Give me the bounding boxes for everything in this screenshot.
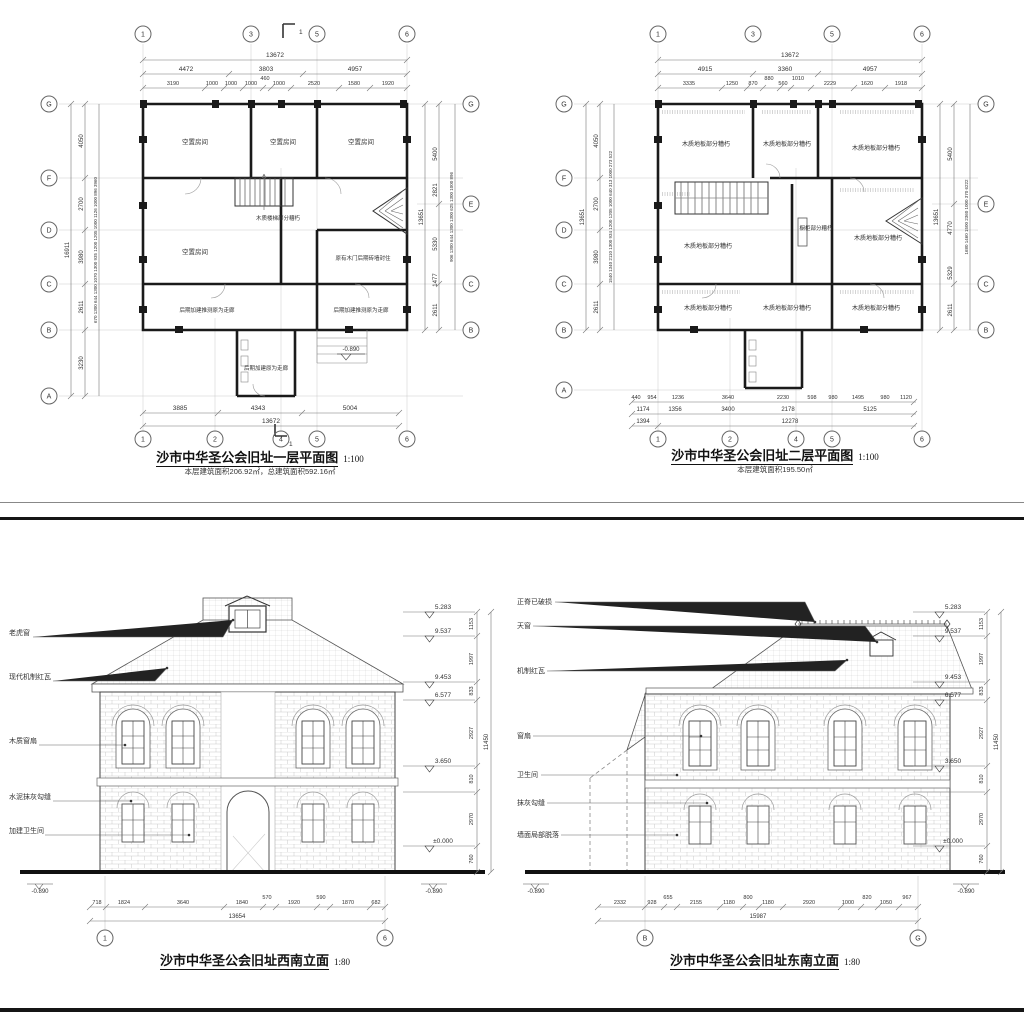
level-text: 6.577 [435, 692, 452, 699]
grid-label: 2 [213, 437, 217, 444]
grid-label: E [469, 202, 474, 209]
dim-text: 590 [316, 895, 325, 901]
dim-text: 1153 [979, 618, 985, 630]
annotation-label: 天窗 [517, 621, 531, 630]
level-text: -0.890 [527, 889, 545, 895]
dim-text: 13672 [266, 52, 284, 59]
grid-label: B [643, 936, 648, 943]
grid-label: 3 [249, 32, 253, 39]
plan2-stair [675, 182, 768, 214]
level-text: 5.283 [435, 604, 452, 611]
grid-label: D [561, 228, 566, 235]
grid-label: 6 [920, 32, 924, 39]
grid-label: G [915, 936, 920, 943]
level-text: 5.283 [945, 604, 962, 611]
se-ground-levels: -0.890 -0.890 [523, 884, 979, 895]
dim-text: 1920 [382, 81, 394, 87]
dim-text: 11450 [484, 733, 490, 750]
southwest-elevation-drawing: 老虎窗 现代机制红瓦 木质窗扇 水泥抹灰勾缝 加建卫生间 5.283 9.537… [5, 540, 505, 970]
level-text: 9.537 [435, 628, 452, 635]
grid-label: 1 [103, 936, 107, 943]
eaves-band [646, 688, 973, 694]
grid-label: G [468, 102, 473, 109]
dim-text: 13672 [781, 52, 799, 59]
dim-text: 760 [979, 854, 985, 863]
dim-text: 2700 [79, 197, 85, 211]
room-label: 木质地板部分糟朽 [852, 144, 900, 152]
level-text: 9.453 [945, 674, 962, 681]
dim-text: 1000 [206, 81, 218, 87]
se-bottom-dimensions: 2332 928 655 2155 1180 800 1180 2920 100… [595, 895, 921, 924]
dim-text: 1824 [118, 900, 130, 906]
cornice-band [645, 780, 950, 788]
dim-chain-text: 670 1300 644 1300 1070 1300 935 1200 120… [93, 176, 98, 323]
dim-text: 718 [92, 900, 101, 906]
annotation-label: 窗扇 [517, 731, 531, 740]
dim-text: 4050 [79, 134, 85, 148]
dim-text: 682 [371, 900, 380, 906]
sw-bottom-dimensions: 718 1824 3640 1840 570 1920 590 1870 682… [87, 895, 388, 924]
dim-text: 3803 [259, 66, 274, 73]
grid-label: 5 [830, 437, 834, 444]
sw-grid-bubbles: 1 6 [97, 930, 393, 946]
dim-text: 3230 [79, 356, 85, 370]
note-label: 后期加建原为走廊 [244, 364, 289, 372]
grid-label: 5 [315, 437, 319, 444]
dim-text: 5329 [948, 266, 954, 280]
grid-label: C [561, 282, 566, 289]
level-text: -0.890 [425, 889, 443, 895]
plan1-room-labels: 空置房间 空置房间 空置房间 空置房间 木质楼梯部分糟朽 原有木门后期砖墙封住 … [179, 137, 391, 372]
dim-text: 3885 [173, 405, 188, 412]
dim-text: 15987 [750, 914, 767, 920]
dim-text: 3335 [683, 81, 695, 87]
dim-text: 1394 [636, 419, 650, 425]
room-label: 空置房间 [348, 137, 374, 146]
dim-text: 1180 [723, 900, 735, 906]
dim-text: 3640 [722, 395, 734, 401]
plan2-cabinet [798, 218, 807, 246]
dim-text: 1000 [245, 81, 257, 87]
dim-text: 1174 [637, 407, 651, 413]
plan1-right-dimensions: 13651 5400 2821 5330 1477 2611 906 1300 … [419, 147, 454, 317]
annotation-label: 正脊已破损 [517, 597, 552, 606]
plan1-grid-bubbles: 1 3 5 6 1 2 4 5 6 G F D C B A G E C B [41, 26, 479, 447]
grid-label: B [469, 328, 474, 335]
grid-label: 4 [279, 437, 283, 444]
annotation-label: 墙面局部脱落 [517, 830, 559, 839]
grid-label: F [562, 176, 566, 183]
dim-text: 2920 [803, 900, 815, 906]
dim-text: 800 [743, 895, 752, 901]
level-text: 3.650 [945, 758, 962, 765]
room-label: 木质地板部分糟朽 [763, 304, 811, 312]
dim-chain-text: 906 1300 644 1300 1300 625 1300 1000 896 [449, 171, 454, 262]
grid-label: 6 [920, 437, 924, 444]
grid-label: G [983, 102, 988, 109]
dim-text: 2927 [979, 727, 985, 739]
grid-label: 1 [141, 32, 145, 39]
dim-text: 1120 [900, 395, 912, 401]
grid-label: F [47, 176, 51, 183]
level-text: ±0.000 [943, 838, 963, 845]
dim-text: 570 [262, 895, 271, 901]
dim-text: 980 [828, 395, 837, 401]
annotation-label: 加建卫生间 [9, 826, 44, 835]
grid-label: C [468, 282, 473, 289]
dim-text: 4957 [348, 66, 363, 73]
annotation-label: 现代机制红瓦 [9, 672, 51, 681]
dim-text: 928 [647, 900, 656, 906]
entry-arch [227, 791, 269, 872]
plan1-bay-window [373, 188, 407, 234]
dim-text: 1000 [273, 81, 285, 87]
room-label: 空置房间 [270, 137, 296, 146]
dim-text: 967 [902, 895, 911, 901]
dim-text: 5330 [433, 237, 439, 251]
dim-text: 1840 [236, 900, 248, 906]
elev-sw-title: 沙市中华圣公会旧址西南立面1:80 [5, 950, 505, 969]
cornice-band [97, 778, 398, 786]
plan2-wall-hatch [662, 112, 915, 292]
room-label: 木质地板部分糟朽 [854, 234, 902, 242]
grid-label: E [984, 202, 989, 209]
dim-text: 2611 [594, 300, 600, 314]
level-text: -0.890 [342, 347, 360, 353]
room-label: 空置房间 [182, 137, 208, 146]
level-text: 6.577 [945, 692, 962, 699]
room-label: 木质地板部分糟朽 [682, 140, 730, 148]
dim-text: 1050 [880, 900, 892, 906]
dim-text: 2700 [594, 197, 600, 211]
dim-text: 598 [807, 395, 816, 401]
dim-text: 1580 [348, 81, 360, 87]
sheet-separator-thick [0, 517, 1024, 520]
dim-text: 2611 [948, 303, 954, 317]
grid-label: 1 [656, 32, 660, 39]
grid-label: G [561, 102, 566, 109]
dim-text: 3640 [177, 900, 189, 906]
dim-text: 1153 [469, 618, 475, 630]
room-label: 空置房间 [182, 247, 208, 256]
dim-text: 2821 [433, 183, 439, 197]
plan2-grid-bubbles: 1 3 5 6 1 2 4 5 6 G F D C B A G E C B [556, 26, 994, 447]
dim-text: 1180 [762, 900, 774, 906]
dim-text: 13654 [229, 914, 246, 920]
dim-text: 2970 [979, 813, 985, 825]
annotation-label: 水泥抹灰勾缝 [9, 792, 51, 801]
dim-text: 1477 [433, 273, 439, 287]
dim-text: 1920 [288, 900, 300, 906]
dim-text: 810 [469, 774, 475, 783]
dim-text: 655 [663, 895, 672, 901]
room-label: 木质地板部分糟朽 [684, 304, 732, 312]
grid-label: 2 [728, 437, 732, 444]
dim-text: 1918 [895, 81, 907, 87]
dim-text: 870 [748, 81, 757, 87]
dim-text: 2970 [469, 813, 475, 825]
dim-text: 1997 [469, 653, 475, 665]
dim-text: 4915 [698, 66, 713, 73]
grid-label: 1 [141, 437, 145, 444]
sheet-bottom-rule [0, 1008, 1024, 1012]
dim-text: 1000 [842, 900, 854, 906]
eaves-band [92, 684, 403, 692]
dim-text: 810 [979, 774, 985, 783]
grid-label: A [562, 388, 567, 395]
plan2-title: 沙市中华圣公会旧址二层平面图1:100 [540, 445, 1010, 464]
second-floor-plan-drawing: 13672 4915 3360 4957 3335 1250 870 880 5… [540, 18, 1010, 448]
dim-text: 5400 [433, 147, 439, 161]
level-text: -0.890 [957, 889, 975, 895]
plan1-title: 沙市中华圣公会旧址一层平面图1:100 [25, 447, 495, 466]
dim-text: 5125 [863, 407, 877, 413]
room-label: 木质地板部分糟朽 [684, 242, 732, 250]
note-label: 木质楼梯部分糟朽 [256, 214, 301, 222]
dim-text: 2229 [824, 81, 836, 87]
dim-text: 5400 [948, 147, 954, 161]
dim-text: 1620 [861, 81, 873, 87]
room-label: 木质地板部分糟朽 [852, 304, 900, 312]
dim-text: 11450 [994, 733, 1000, 750]
dim-text: 1356 [668, 407, 682, 413]
dim-text: 3980 [79, 250, 85, 264]
dim-text: 4472 [179, 66, 194, 73]
grid-label: B [562, 328, 567, 335]
plan1-top-dimensions: 13672 4472 3803 4957 3190 1000 1000 1000… [167, 52, 394, 87]
dim-chain-text: 1680 1460 1500 2360 1000 370 6222 [964, 179, 969, 255]
dimension-lines [583, 57, 970, 429]
annotation-label: 木质窗扇 [9, 736, 37, 745]
plan2-right-dimensions: 13651 5400 4770 5329 2611 1680 1460 1500… [934, 147, 969, 317]
dim-text: 980 [880, 395, 889, 401]
plan1-section-marks: 1 1 [275, 24, 303, 448]
level-text: ±0.000 [433, 838, 453, 845]
dim-text: 1495 [852, 395, 864, 401]
plan1-stair [235, 174, 293, 210]
dim-text: 2611 [79, 300, 85, 314]
note-label: 后期加建推测原为走廊 [179, 306, 235, 314]
plan2-bay-interior [749, 340, 756, 382]
grid-label: 4 [794, 437, 798, 444]
dim-text: 2611 [433, 303, 439, 317]
annotation-label: 机制红瓦 [517, 666, 545, 675]
dim-text: 4770 [948, 221, 954, 235]
grid-label: 6 [383, 936, 387, 943]
dim-text: 460 [260, 76, 269, 82]
dim-text: 3190 [167, 81, 179, 87]
dim-text: 440 [631, 395, 640, 401]
dim-text: 954 [647, 395, 656, 401]
grid-label: C [983, 282, 988, 289]
dim-text: 880 [764, 76, 773, 82]
plan1-level-mark: -0.890 [337, 347, 365, 360]
elev-se-title: 沙市中华圣公会旧址东南立面1:80 [515, 950, 1015, 969]
grid-label: 3 [751, 32, 755, 39]
dim-text: 2230 [777, 395, 789, 401]
note-label: 橱柜部分糟朽 [799, 224, 833, 232]
dim-text: 3360 [778, 66, 793, 73]
plan1-subtitle: 本层建筑面积206.92㎡，总建筑面积592.16㎡ [25, 466, 495, 477]
first-floor-plan-drawing: 13672 4472 3803 4957 3190 1000 1000 1000… [25, 18, 495, 448]
dim-text: 1010 [792, 76, 804, 82]
se-grid-bubbles: B G [637, 930, 926, 946]
dim-text: 1250 [726, 81, 738, 87]
dim-text: 12278 [782, 419, 799, 425]
sw-ground-levels: -0.890 -0.890 [27, 884, 447, 895]
dim-text: 3980 [594, 250, 600, 264]
dim-text: 13651 [934, 208, 940, 225]
dim-text: 820 [862, 895, 871, 901]
dimension-lines [68, 57, 455, 429]
plan2-columns [654, 100, 926, 333]
grid-label: G [46, 102, 51, 109]
dim-text: 560 [778, 81, 787, 87]
dim-text: 2155 [690, 900, 702, 906]
grid-label: 6 [405, 437, 409, 444]
dim-chain-text: 1540 1340 2110 1300 934 1200 1205 1000 6… [608, 150, 613, 283]
grid-label: 5 [315, 32, 319, 39]
sw-level-markers: 5.283 9.537 9.453 6.577 3.650 ±0.000 115… [403, 604, 494, 875]
dim-text: 3400 [721, 407, 735, 413]
level-text: 9.453 [435, 674, 452, 681]
annotation-label: 卫生间 [517, 770, 538, 779]
dim-text: 2178 [781, 407, 795, 413]
dim-text: 13672 [262, 418, 280, 425]
dim-text: 4050 [594, 134, 600, 148]
dim-text: 16911 [65, 241, 71, 258]
sheet-separator-thin [0, 502, 1024, 503]
plan2-left-dimensions: 13651 4050 2700 3980 2611 1540 1340 2110… [580, 134, 613, 314]
grid-label: B [47, 328, 52, 335]
dim-text: 760 [469, 854, 475, 863]
plan2-bottom-dimensions: 440 954 1236 3640 2230 598 980 1495 980 … [631, 395, 912, 425]
dim-text: 1870 [342, 900, 354, 906]
level-text: -0.890 [31, 889, 49, 895]
level-text: 3.650 [435, 758, 452, 765]
room-label: 木质地板部分糟朽 [763, 140, 811, 148]
dim-text: 833 [979, 686, 985, 695]
dim-text: 13651 [580, 208, 586, 225]
dim-text: 2520 [308, 81, 320, 87]
dim-text: 4343 [251, 405, 266, 412]
dim-text: 1997 [979, 653, 985, 665]
level-text: 9.537 [945, 628, 962, 635]
grid-label: D [46, 228, 51, 235]
grid-label: C [46, 282, 51, 289]
annotation-label: 抹灰勾缝 [517, 798, 545, 807]
southeast-elevation-drawing: 正脊已破损 天窗 机制红瓦 窗扇 卫生间 抹灰勾缝 墙面局部脱落 5.283 9… [515, 540, 1015, 970]
dim-text: 4957 [863, 66, 878, 73]
dim-text: 13651 [419, 208, 425, 225]
annotation-label: 老虎窗 [9, 628, 30, 637]
grid-label: 5 [830, 32, 834, 39]
plan1-entry-steps [241, 330, 367, 382]
note-label: 原有木门后期砖墙封住 [335, 254, 391, 262]
dim-text: 1236 [672, 395, 684, 401]
plan2-subtitle: 本层建筑面积195.50㎡ [540, 464, 1010, 475]
dim-text: 1000 [225, 81, 237, 87]
note-label: 后期加建推测原为走廊 [333, 306, 389, 314]
drawing-sheet: { "plan1": { "title": "沙市中华圣公会旧址一层平面图", … [0, 0, 1024, 1024]
lean-to-outline [590, 750, 627, 872]
plan1-bottom-dimensions: 3885 4343 5004 13672 [173, 405, 358, 425]
grid-label: B [984, 328, 989, 335]
dim-text: 5004 [343, 405, 358, 412]
plan1-left-dimensions: 16911 4050 2700 3980 2611 3230 670 1300 … [65, 134, 98, 370]
grid-label: 1 [656, 437, 660, 444]
dim-text: 833 [469, 686, 475, 695]
grid-label: 6 [405, 32, 409, 39]
section-mark-label: 1 [299, 29, 303, 36]
plan2-top-dimensions: 13672 4915 3360 4957 3335 1250 870 880 5… [683, 52, 907, 87]
dim-text: 2332 [614, 900, 626, 906]
dim-text: 2927 [469, 727, 475, 739]
grid-label: A [47, 394, 52, 401]
